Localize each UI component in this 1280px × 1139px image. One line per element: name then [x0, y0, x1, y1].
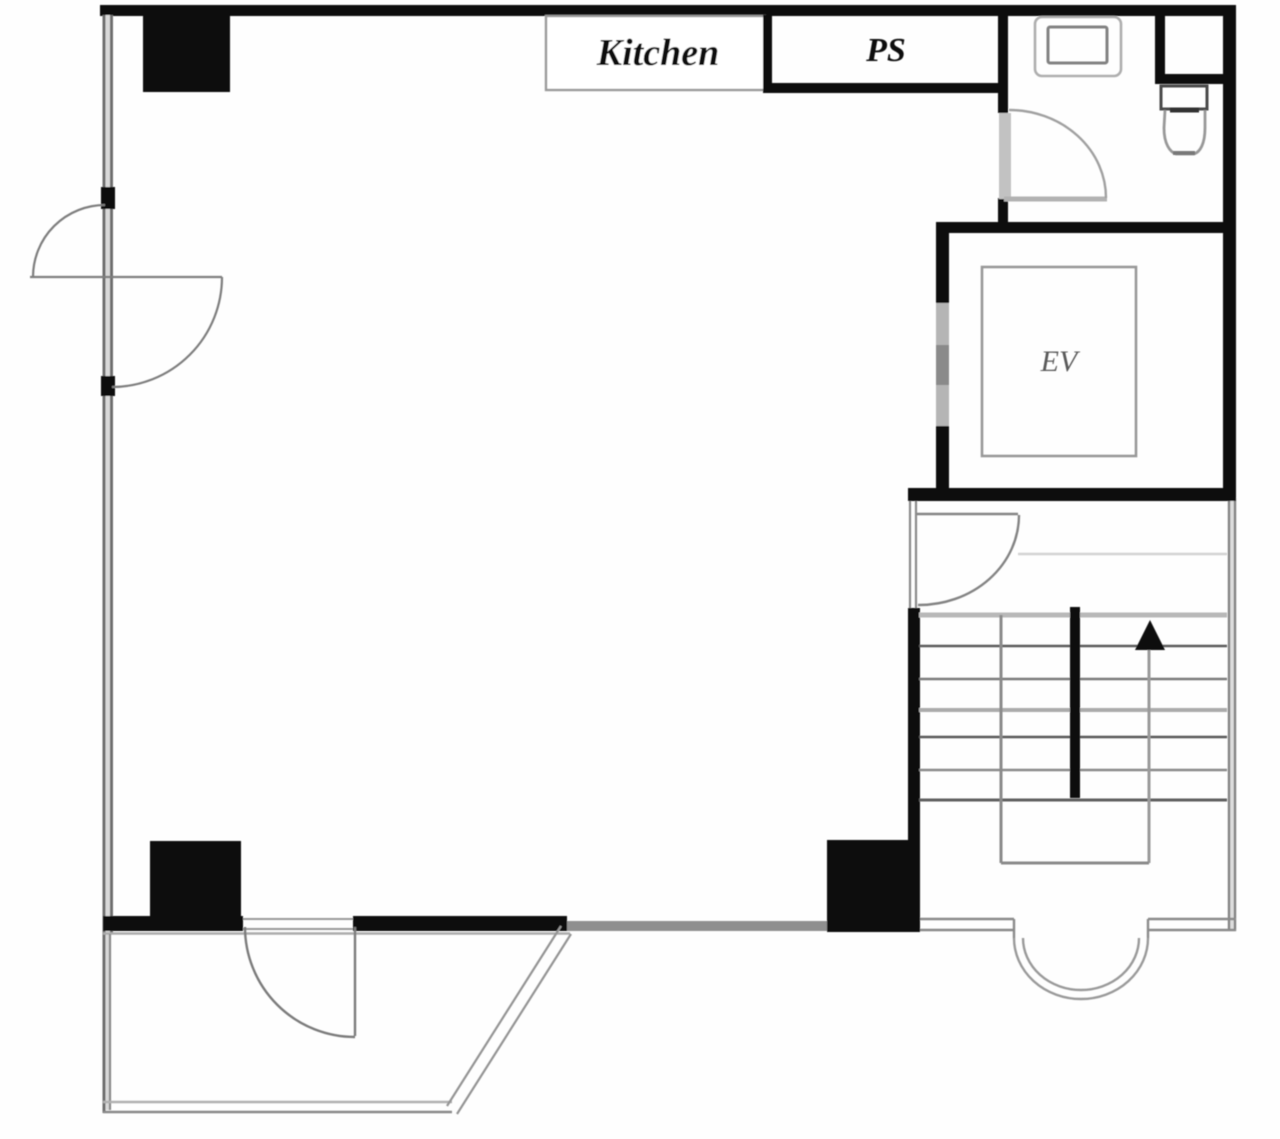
svg-text:Kitchen: Kitchen — [596, 32, 719, 74]
svg-text:EV: EV — [1040, 345, 1081, 378]
svg-text:PS: PS — [865, 32, 906, 69]
